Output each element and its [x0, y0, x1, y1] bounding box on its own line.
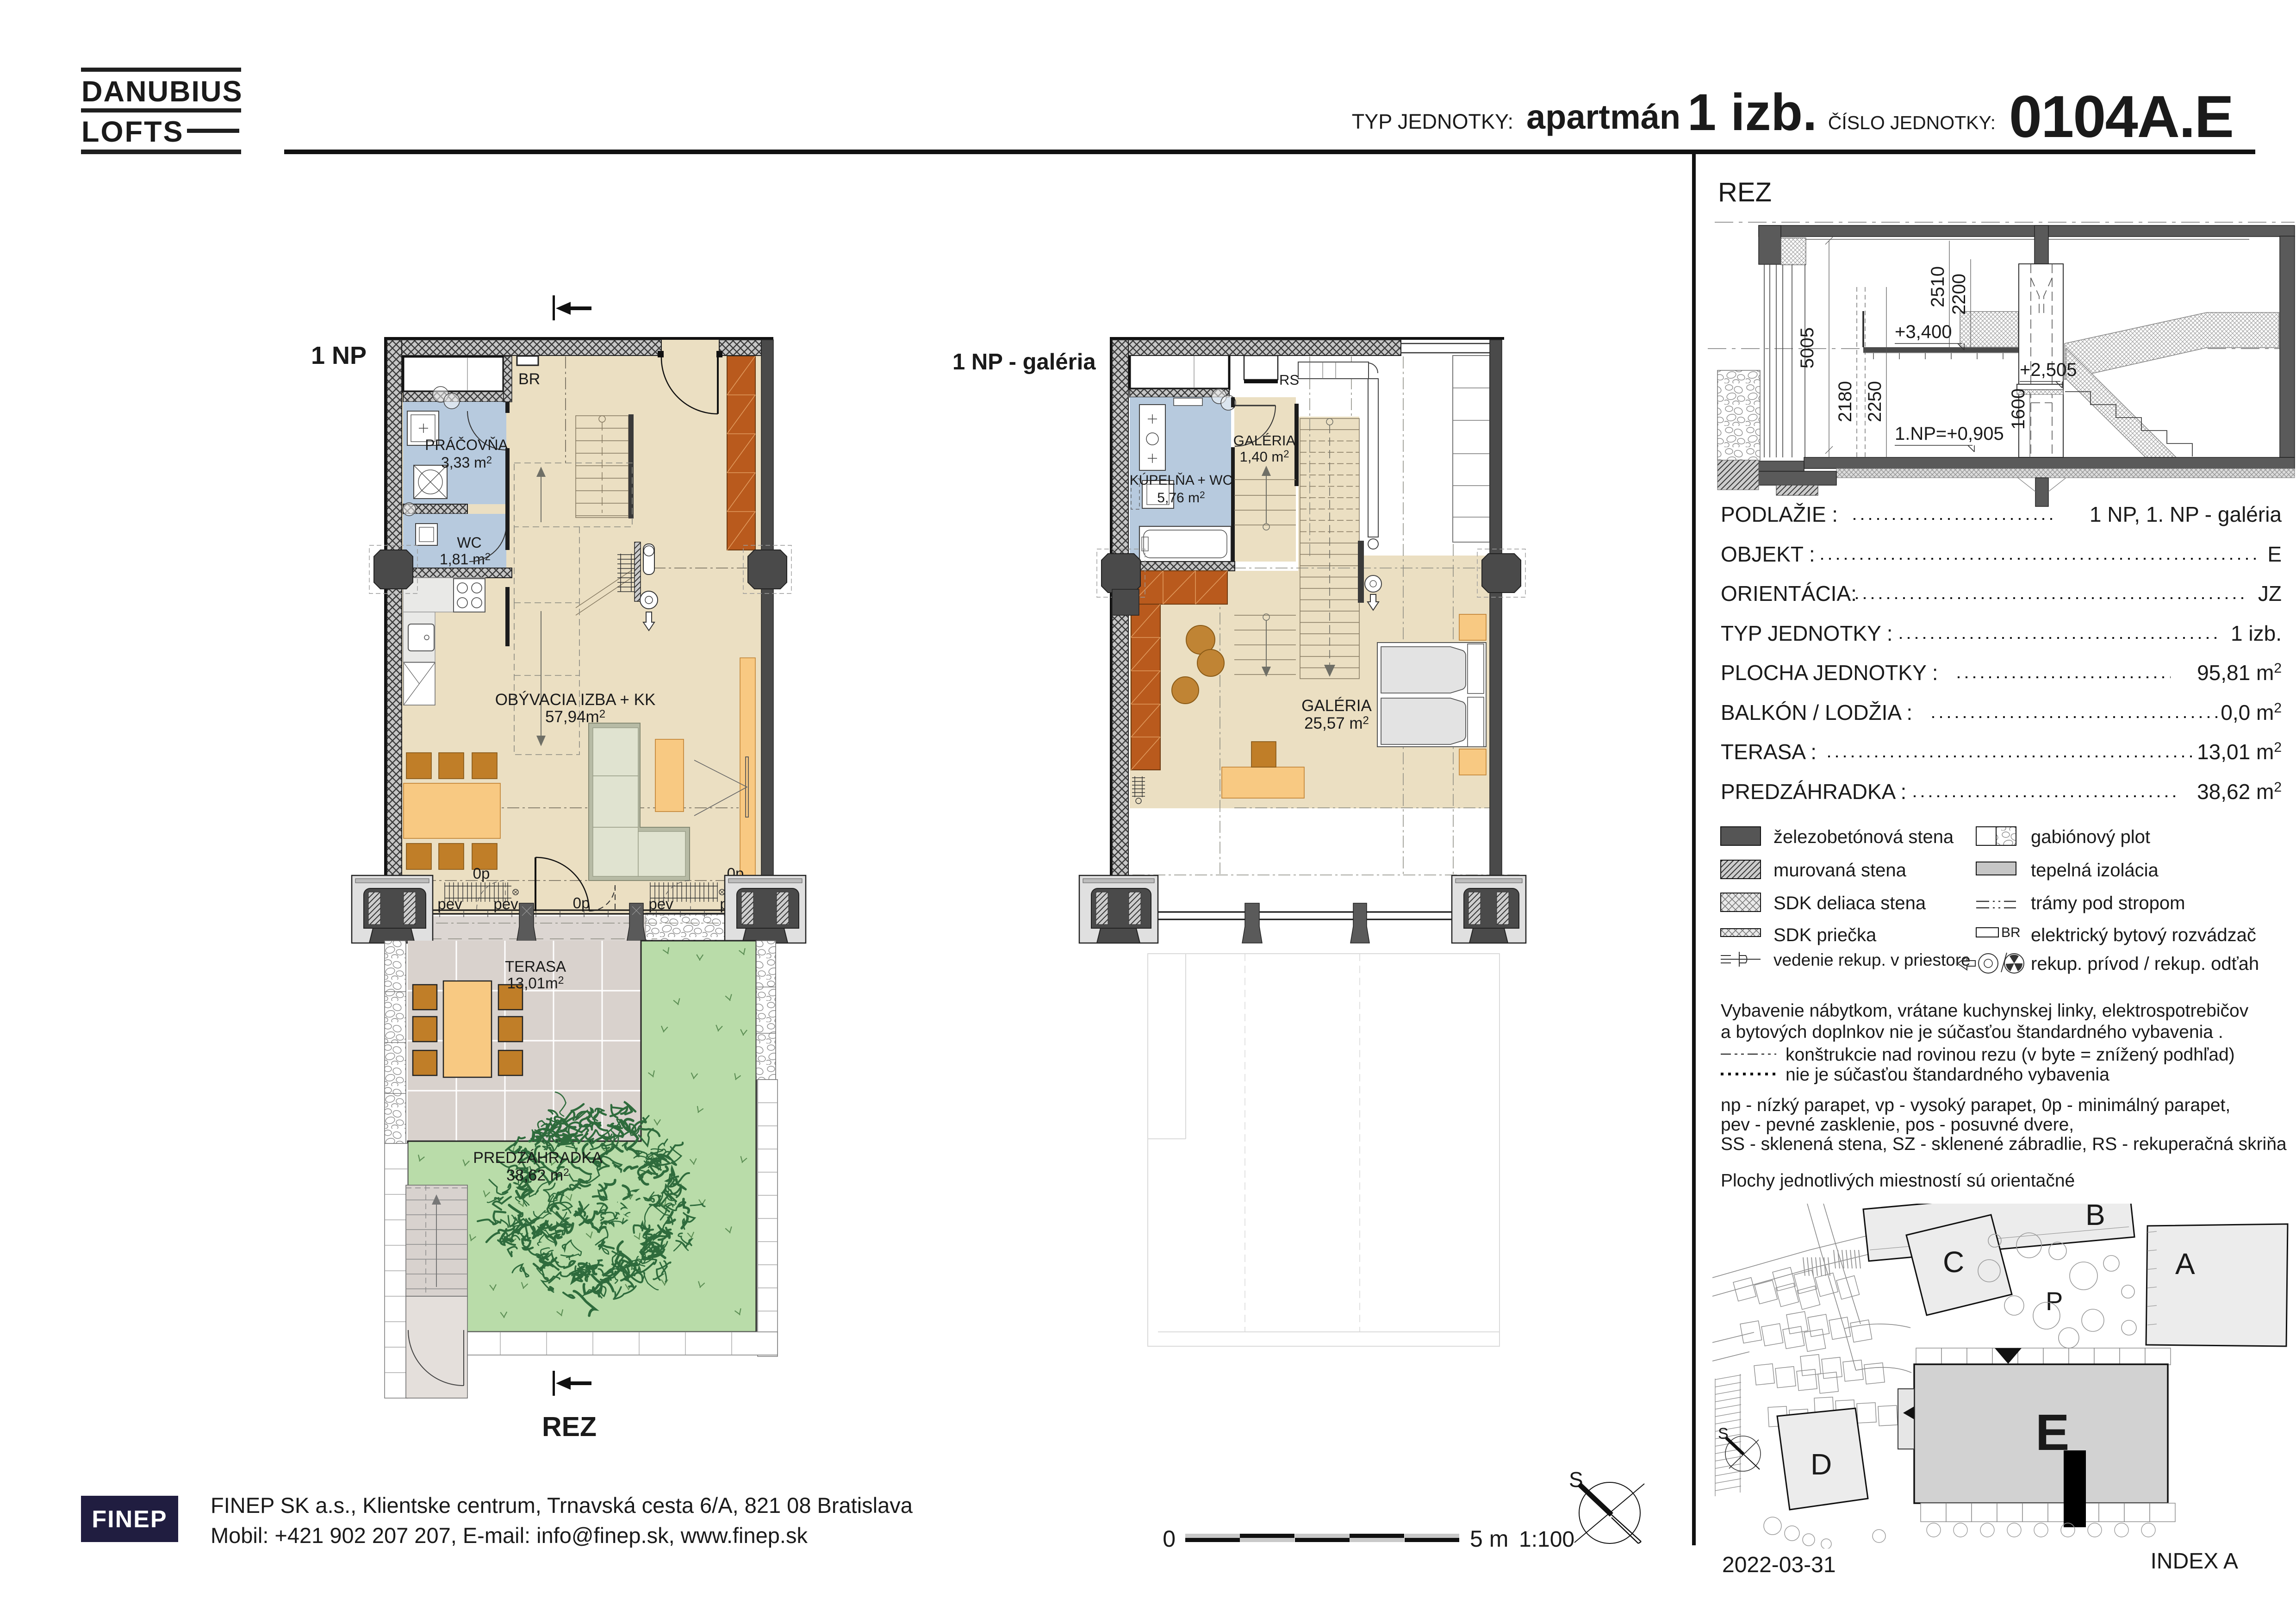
svg-text:KÚPELŇA + WC: KÚPELŇA + WC — [1130, 473, 1233, 488]
svg-text:Plochy jednotlivých miestností: Plochy jednotlivých miestností sú orient… — [1721, 1171, 2075, 1191]
svg-text:38,62 m2: 38,62 m2 — [506, 1166, 569, 1184]
svg-text:TYP JEDNOTKY :: TYP JEDNOTKY : — [1721, 621, 1893, 645]
svg-text:0p: 0p — [573, 894, 590, 912]
svg-text:1 NP: 1 NP — [311, 342, 367, 369]
svg-text:2510: 2510 — [1928, 266, 1948, 307]
svg-text:JZ: JZ — [2258, 581, 2282, 606]
svg-text:1.NP=+0,905: 1.NP=+0,905 — [1895, 424, 2004, 444]
svg-text:1 NP - galéria: 1 NP - galéria — [952, 350, 1096, 375]
svg-text:25,57 m2: 25,57 m2 — [1304, 714, 1369, 732]
svg-text:trámy pod stropom: trámy pod stropom — [2031, 893, 2185, 913]
svg-text:GALÉRIA: GALÉRIA — [1233, 432, 1296, 449]
svg-text:RS: RS — [1279, 372, 1299, 388]
svg-text:0,0 m2: 0,0 m2 — [2221, 700, 2282, 725]
svg-text:0: 0 — [1163, 1526, 1176, 1552]
svg-text:WC: WC — [457, 534, 481, 551]
svg-text:elektrický bytový rozvádzač: elektrický bytový rozvádzač — [2031, 925, 2256, 945]
svg-text:np - nízký parapet, vp - vysok: np - nízký parapet, vp - vysoký parapet,… — [1721, 1095, 2230, 1115]
svg-text:13,01m2: 13,01m2 — [507, 974, 564, 992]
svg-text:D: D — [1811, 1448, 1832, 1481]
svg-text:DANUBIUS: DANUBIUS — [81, 75, 243, 108]
svg-text:0104A.E: 0104A.E — [2009, 84, 2233, 150]
svg-text:FINEP SK a.s., Klientske centr: FINEP SK a.s., Klientske centrum, Trnavs… — [211, 1493, 913, 1518]
svg-text:5,76 m2: 5,76 m2 — [1157, 490, 1205, 506]
svg-text:rekup. prívod / rekup. odťah: rekup. prívod / rekup. odťah — [2031, 954, 2259, 974]
svg-text:5005: 5005 — [1797, 327, 1817, 369]
svg-text:38,62 m2: 38,62 m2 — [2197, 780, 2282, 804]
svg-text:2200: 2200 — [1949, 274, 1969, 315]
svg-text:C: C — [1943, 1245, 1964, 1279]
svg-text:pev - pevné zasklenie, pos - p: pev - pevné zasklenie, pos - posuvné dve… — [1721, 1115, 2074, 1135]
svg-text:0p: 0p — [473, 865, 490, 882]
svg-text:GALÉRIA: GALÉRIA — [1301, 697, 1372, 715]
svg-text:2180: 2180 — [1835, 381, 1855, 422]
svg-text:PREDZÁHRADKA :: PREDZÁHRADKA : — [1721, 780, 1906, 804]
svg-text:nie je súčasťou štandardného v: nie je súčasťou štandardného vybavenia — [1786, 1065, 2109, 1085]
svg-text:+2,505: +2,505 — [2020, 360, 2077, 380]
svg-text:pev: pev — [648, 895, 673, 912]
svg-text:SDK priečka: SDK priečka — [1773, 925, 1877, 945]
svg-text:gabiónový plot: gabiónový plot — [2031, 827, 2150, 847]
svg-text:PREDZÁHRADKA: PREDZÁHRADKA — [473, 1149, 603, 1167]
svg-text:pev: pev — [437, 895, 462, 912]
svg-text:1 izb.: 1 izb. — [2231, 621, 2282, 645]
svg-text:železobetónová stena: železobetónová stena — [1773, 827, 1954, 847]
svg-text:ČÍSLO JEDNOTKY:: ČÍSLO JEDNOTKY: — [1828, 112, 1996, 133]
svg-text:REZ: REZ — [542, 1412, 597, 1442]
svg-text:OBJEKT :: OBJEKT : — [1721, 542, 1815, 566]
svg-text:1,40 m2: 1,40 m2 — [1239, 448, 1289, 465]
svg-text:P: P — [2046, 1287, 2063, 1316]
svg-text:1 NP, 1. NP - galéria: 1 NP, 1. NP - galéria — [2090, 502, 2282, 526]
svg-text:Mobil: +421 902 207 207, E-mai: Mobil: +421 902 207 207, E-mail: info@fi… — [211, 1523, 808, 1548]
svg-text:2250: 2250 — [1865, 381, 1885, 422]
svg-text:3,33 m2: 3,33 m2 — [441, 454, 492, 471]
svg-text:OBÝVACIA IZBA + KK: OBÝVACIA IZBA + KK — [495, 691, 656, 709]
svg-text:TERASA: TERASA — [505, 958, 566, 975]
svg-text:a bytových doplnkov nie je sú: a bytových doplnkov nie je súčasťou štan… — [1721, 1022, 2223, 1042]
svg-text:murovaná stena: murovaná stena — [1773, 860, 1907, 881]
svg-text:1:100: 1:100 — [1519, 1527, 1574, 1552]
svg-text:Vybavenie nábytkom, vrátane ku: Vybavenie nábytkom, vrátane kuchynskej l… — [1721, 1001, 2249, 1021]
svg-text:PODLAŽIE :: PODLAŽIE : — [1721, 502, 1838, 526]
svg-text:tepelná izolácia: tepelná izolácia — [2031, 860, 2159, 881]
svg-text:1600: 1600 — [2008, 388, 2028, 430]
svg-text:2022-03-31: 2022-03-31 — [1722, 1553, 1836, 1577]
svg-text:INDEX A: INDEX A — [2151, 1549, 2238, 1574]
svg-text:SDK deliaca stena: SDK deliaca stena — [1773, 893, 1926, 913]
svg-text:57,94m2: 57,94m2 — [545, 708, 605, 726]
svg-text:PRÁČOVŇA: PRÁČOVŇA — [425, 437, 508, 453]
svg-text:PLOCHA JEDNOTKY :: PLOCHA JEDNOTKY : — [1721, 661, 1938, 685]
svg-text:TERASA :: TERASA : — [1721, 740, 1817, 764]
svg-text:E: E — [2267, 542, 2282, 566]
svg-text:TYP JEDNOTKY:: TYP JEDNOTKY: — [1352, 110, 1513, 133]
svg-text:13,01 m2: 13,01 m2 — [2197, 740, 2282, 764]
svg-text:BALKÓN / LODŽIA :: BALKÓN / LODŽIA : — [1721, 700, 1912, 725]
svg-text:95,81 m2: 95,81 m2 — [2197, 661, 2282, 685]
svg-text:A: A — [2175, 1247, 2195, 1280]
svg-text:1 izb.: 1 izb. — [1687, 83, 1817, 141]
svg-text:BR: BR — [2001, 925, 2021, 940]
svg-text:+3,400: +3,400 — [1895, 322, 1952, 342]
svg-text:konštrukcie nad rovinou rezu (: konštrukcie nad rovinou rezu (v byte = z… — [1786, 1045, 2235, 1065]
svg-text:vedenie rekup. v priestore: vedenie rekup. v priestore — [1773, 950, 1971, 969]
svg-text:5 m: 5 m — [1470, 1526, 1508, 1552]
svg-text:REZ: REZ — [1718, 177, 1772, 207]
svg-text:BR: BR — [518, 370, 540, 388]
svg-text:LOFTS: LOFTS — [81, 116, 184, 148]
svg-text:pev: pev — [493, 895, 518, 912]
svg-text:ORIENTÁCIA:: ORIENTÁCIA: — [1721, 581, 1857, 606]
svg-text:apartmán: apartmán — [1526, 98, 1680, 136]
svg-text:SS - sklenená stena, SZ - skl: SS - sklenená stena, SZ - sklenené zábra… — [1721, 1134, 2287, 1154]
svg-text:FINEP: FINEP — [92, 1506, 167, 1533]
